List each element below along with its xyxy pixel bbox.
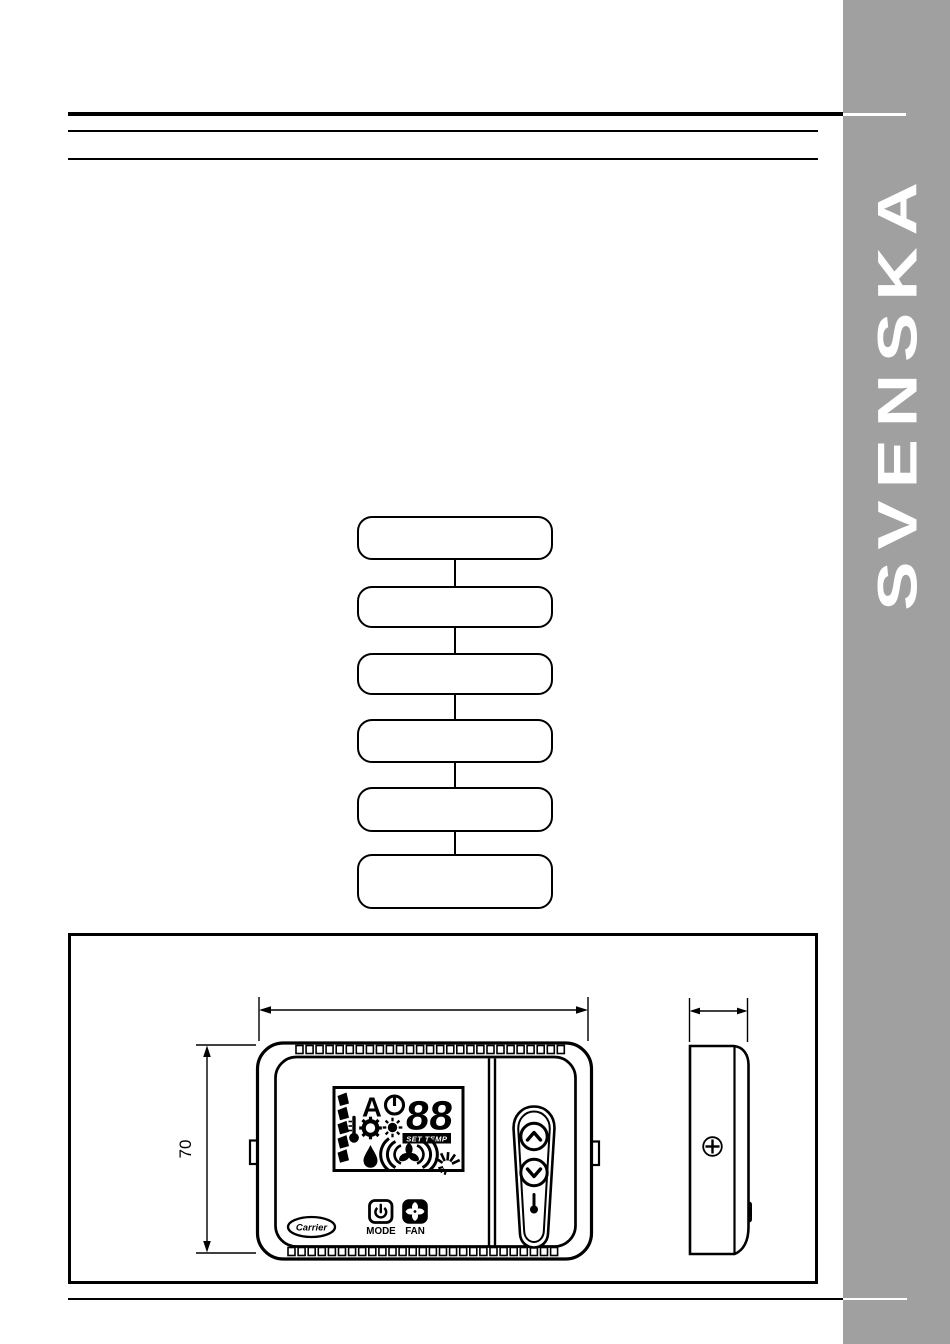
dimension-side-width (690, 998, 748, 1042)
bottom-vents (288, 1248, 558, 1256)
side-view (690, 1046, 752, 1254)
screw-icon (703, 1137, 722, 1156)
top-vents (296, 1046, 564, 1054)
front-view: A 88 SET TEMP (250, 1043, 599, 1259)
svg-text:88: 88 (404, 1093, 456, 1139)
height-dimension-label: 70 (176, 1140, 195, 1159)
side-outline (690, 1046, 749, 1254)
mode-button (370, 1201, 393, 1223)
temp-up-button (521, 1123, 547, 1149)
temp-rocker (514, 1107, 555, 1248)
temp-down-button (521, 1159, 547, 1185)
seven-segment-digits: 88 (404, 1093, 456, 1139)
heat-icon (383, 1118, 403, 1138)
brand-label: Carrier (296, 1223, 328, 1234)
figure-drawing: A 88 SET TEMP (0, 0, 950, 1344)
dimension-height: 70 (176, 1045, 256, 1253)
footer-rule-white (843, 1298, 907, 1301)
lcd-display: A 88 SET TEMP (334, 1088, 463, 1175)
fan-button-label: FAN (405, 1226, 425, 1237)
set-temp-badge: SET TEMP (403, 1133, 452, 1144)
page: SVENSKA (0, 0, 950, 1344)
mode-button-label: MODE (366, 1226, 396, 1237)
footer-rule (68, 1298, 843, 1301)
set-temp-label: SET TEMP (406, 1135, 448, 1144)
brand-logo: Carrier (288, 1217, 335, 1237)
fan-button (404, 1201, 427, 1223)
dimension-front-width (259, 997, 588, 1041)
